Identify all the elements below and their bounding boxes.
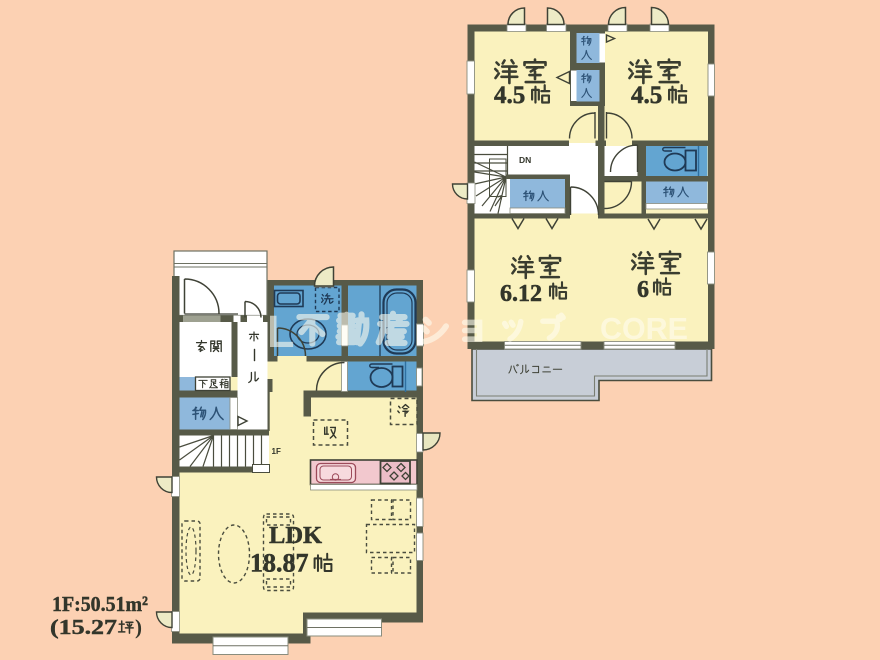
svg-text:6.12: 6.12 — [500, 281, 542, 307]
svg-text:6: 6 — [637, 277, 649, 303]
svg-text:L: L — [267, 306, 295, 357]
svg-text:): ) — [135, 615, 142, 639]
svg-text:4.5: 4.5 — [631, 82, 662, 109]
svg-text:DN: DN — [519, 155, 531, 165]
svg-text:18.87: 18.87 — [250, 549, 309, 578]
svg-text:1F:50.51m²: 1F:50.51m² — [52, 592, 148, 616]
svg-text:(15.27: (15.27 — [50, 615, 117, 639]
svg-text:1F: 1F — [272, 447, 281, 456]
svg-text:4.5: 4.5 — [494, 82, 525, 109]
svg-text:LDK: LDK — [269, 522, 322, 549]
svg-text:CORE: CORE — [600, 311, 688, 346]
